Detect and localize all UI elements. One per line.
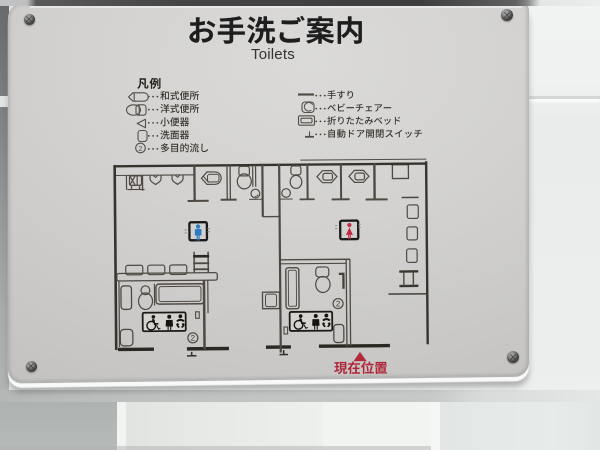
svg-text:2: 2 <box>336 299 341 308</box>
svg-text:2: 2 <box>191 334 196 343</box>
